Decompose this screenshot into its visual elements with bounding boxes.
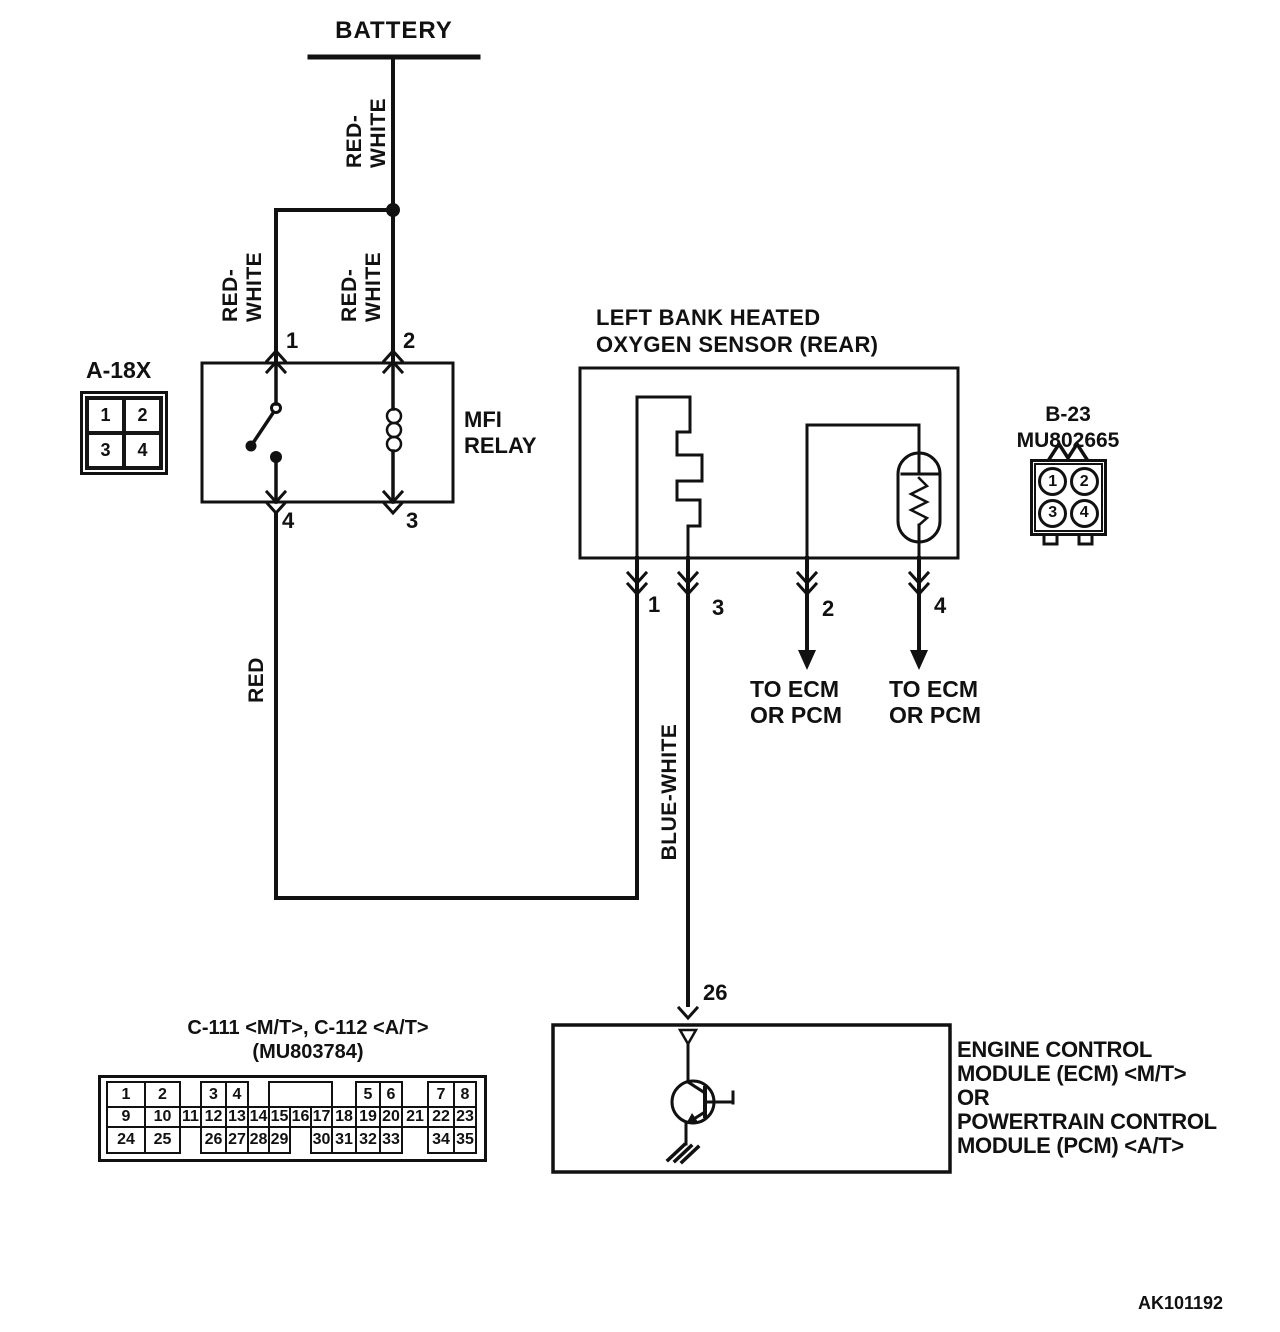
ecm-box — [553, 1008, 950, 1172]
sensor-pin-leads — [688, 558, 919, 1005]
socket-triangle-icon — [680, 1030, 696, 1044]
wire-label-red-white-top: RED- WHITE — [343, 82, 391, 168]
c111-pin-9: 9 — [106, 1106, 146, 1128]
c111-title: C-111 <M/T>, C-112 <A/T> (MU803784) — [128, 1016, 488, 1064]
red-wire — [276, 513, 637, 898]
c111-pin-grid: 1234567891011121314151617181920212223242… — [107, 1082, 476, 1153]
c111-pin-30: 30 — [310, 1126, 333, 1154]
connector-chevron-icon — [628, 573, 928, 594]
c111-pin-20: 20 — [379, 1106, 403, 1128]
c111-pin-18: 18 — [331, 1106, 357, 1128]
wire-label-red-white-left: RED- WHITE — [219, 228, 267, 322]
c111-pin-5: 5 — [355, 1081, 381, 1108]
oxygen-sensor-box — [580, 368, 958, 558]
c111-pin-15: 15 — [268, 1106, 291, 1128]
arrowhead-icon — [798, 650, 928, 670]
sensor-element-symbol — [807, 425, 940, 558]
c111-pin-14: 14 — [247, 1106, 270, 1128]
c111-pin-19: 19 — [355, 1106, 381, 1128]
a18x-pin-2: 2 — [126, 400, 159, 431]
to-ecm-label-right: TO ECM OR PCM — [889, 676, 981, 728]
c111-pin-25: 25 — [144, 1126, 181, 1154]
b23-title: B-23 MU802665 — [1000, 402, 1136, 454]
sensor-pin-4: 4 — [934, 594, 946, 618]
c111-pin-8: 8 — [453, 1081, 477, 1108]
c111-connector: 1234567891011121314151617181920212223242… — [98, 1075, 487, 1162]
wire-label-red: RED — [245, 652, 269, 708]
c111-pin-28: 28 — [247, 1126, 270, 1154]
c111-pin-29: 29 — [268, 1126, 291, 1154]
c111-pin-3: 3 — [200, 1081, 227, 1108]
c111-pin-10: 10 — [144, 1106, 181, 1128]
mfi-relay-label: MFI RELAY — [464, 407, 537, 459]
ecm-pin-26: 26 — [703, 981, 727, 1005]
c111-pin-1: 1 — [106, 1081, 146, 1108]
b23-pin-2: 2 — [1070, 467, 1099, 496]
c111-pin-12: 12 — [200, 1106, 227, 1128]
ground-icon — [668, 1145, 698, 1162]
a18x-connector: 1 2 3 4 — [80, 391, 168, 475]
c111-pin-22: 22 — [427, 1106, 455, 1128]
sensor-pin-3: 3 — [712, 596, 724, 620]
c111-pin-27: 27 — [225, 1126, 249, 1154]
heater-element-symbol — [637, 397, 702, 558]
to-ecm-label-left: TO ECM OR PCM — [750, 676, 842, 728]
connector-chevron-icon — [679, 1008, 697, 1018]
a18x-title: A-18X — [86, 358, 151, 383]
battery-label: BATTERY — [310, 18, 478, 44]
c111-pin-24: 24 — [106, 1126, 146, 1154]
b23-pin-4: 4 — [1070, 499, 1099, 528]
c111-pin-7: 7 — [427, 1081, 455, 1108]
c111-pin-17: 17 — [310, 1106, 333, 1128]
c111-pin-11: 11 — [179, 1106, 202, 1128]
c111-pin-31: 31 — [331, 1126, 357, 1154]
c111-pin-26: 26 — [200, 1126, 227, 1154]
figure-code: AK101192 — [1138, 1294, 1223, 1314]
relay-coil-symbol — [387, 363, 401, 502]
c111-pin-33: 33 — [379, 1126, 403, 1154]
b23-pin-3: 3 — [1038, 499, 1067, 528]
c111-pin-32: 32 — [355, 1126, 381, 1154]
c111-pin-34: 34 — [427, 1126, 455, 1154]
relay-pin-2: 2 — [403, 329, 415, 353]
wire-label-blue-white: BLUE-WHITE — [658, 712, 684, 872]
relay-switch-symbol — [246, 363, 283, 502]
a18x-pin-1: 1 — [89, 400, 122, 431]
sensor-pin-2: 2 — [822, 597, 834, 621]
wire-label-red-white-right: RED- WHITE — [338, 228, 386, 322]
connector-chevron-icon — [267, 351, 402, 372]
relay-pin-1: 1 — [286, 329, 298, 353]
sensor-pin-1: 1 — [648, 593, 660, 617]
c111-pin-35: 35 — [453, 1126, 477, 1154]
c111-pin-2: 2 — [144, 1081, 181, 1108]
relay-pin-3: 3 — [406, 509, 418, 533]
c111-pin-16: 16 — [289, 1106, 312, 1128]
c111-pin-6: 6 — [379, 1081, 403, 1108]
c111-pin-4: 4 — [225, 1081, 249, 1108]
b23-pin-1: 1 — [1038, 467, 1067, 496]
wiring-diagram-page: { "battery": { "label": "BATTERY" }, "wi… — [0, 0, 1280, 1332]
oxygen-sensor-title: LEFT BANK HEATED OXYGEN SENSOR (REAR) — [596, 304, 878, 358]
wire-junction-dot — [386, 203, 400, 217]
c111-pin-23: 23 — [453, 1106, 477, 1128]
c111-blank-cell — [268, 1081, 333, 1108]
ecm-label: ENGINE CONTROL MODULE (ECM) <M/T> OR POW… — [957, 1038, 1217, 1158]
transistor-symbol — [672, 1044, 733, 1144]
b23-connector: 1 2 3 4 — [1030, 459, 1107, 536]
a18x-pin-4: 4 — [126, 435, 159, 466]
c111-pin-13: 13 — [225, 1106, 249, 1128]
relay-pin-4: 4 — [282, 509, 294, 533]
a18x-pin-3: 3 — [89, 435, 122, 466]
mfi-relay-box — [202, 363, 453, 502]
c111-pin-21: 21 — [401, 1106, 429, 1128]
